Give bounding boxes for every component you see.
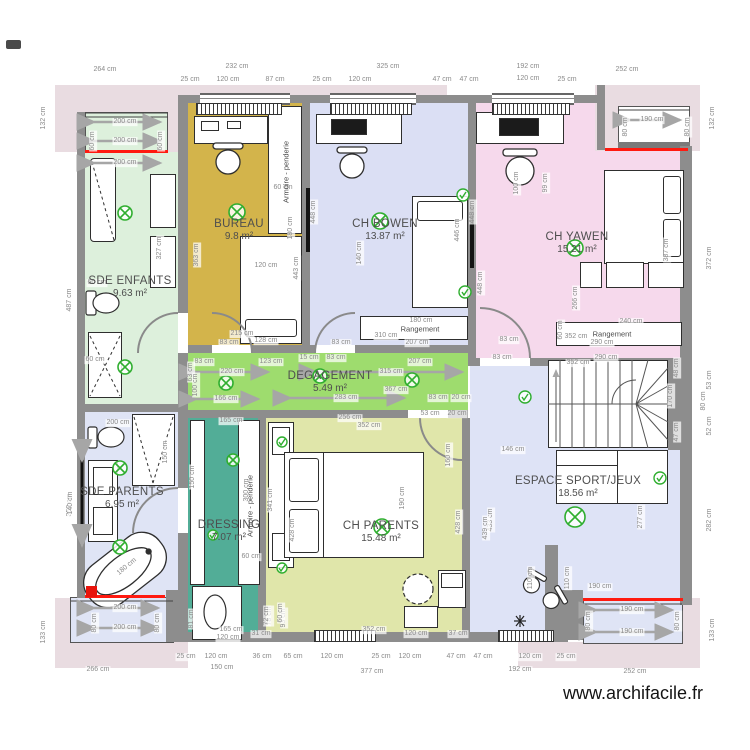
dimension-label: 232 cm [225, 63, 250, 71]
bay-window-top-left [85, 112, 168, 152]
pillow [663, 176, 681, 214]
bathtub-child[interactable] [90, 158, 116, 242]
radiator[interactable] [498, 630, 554, 642]
red-marker [86, 586, 97, 597]
dimension-label: 133 cm [40, 620, 48, 645]
window-marker-red [85, 150, 168, 153]
dimension-label: 252 cm [615, 66, 640, 74]
dresser[interactable] [438, 570, 466, 608]
wardrobe[interactable] [268, 106, 302, 234]
dimension-label: 25 cm [311, 76, 332, 84]
corner-ui-artifact [6, 40, 21, 49]
dimension-label: 192 cm [516, 63, 541, 71]
dimension-label: 25 cm [370, 653, 391, 661]
room-degagement[interactable] [188, 353, 468, 410]
dimension-label: 325 cm [376, 63, 401, 71]
sofa-divider [617, 451, 618, 503]
dimension-label: 133 cm [709, 618, 717, 643]
wall-segment [77, 112, 85, 598]
wall-segment [556, 590, 583, 640]
door-opening [178, 488, 188, 533]
bed-single[interactable] [412, 196, 468, 308]
door-opening [315, 345, 355, 353]
desk[interactable] [476, 112, 564, 144]
bay-window-top-right [618, 106, 690, 144]
desk-item [201, 121, 219, 131]
dimension-label: 47 cm [458, 76, 479, 84]
staircase[interactable] [548, 360, 668, 448]
floor-plan: 264 cm232 cm325 cm192 cm252 cm25 cm120 c… [0, 0, 750, 750]
sofa[interactable] [556, 450, 668, 504]
dimension-label: 80 cm [700, 390, 708, 411]
window-marker-red [85, 595, 165, 598]
dimension-label: 352 cm [66, 493, 74, 518]
dimension-label: 36 cm [251, 653, 272, 661]
bed-divider [323, 453, 324, 557]
basin [93, 467, 113, 495]
wardrobe[interactable] [238, 420, 260, 585]
pillow [417, 201, 463, 221]
shower[interactable] [132, 414, 175, 486]
dimension-label: 65 cm [282, 653, 303, 661]
computer-monitor [499, 118, 539, 136]
washbasin-cabinet[interactable] [150, 174, 176, 228]
dimension-label: 120 cm [398, 653, 423, 661]
washbasin-cabinet[interactable] [150, 236, 176, 288]
door-opening [178, 313, 188, 353]
dimension-label: 53 cm [706, 369, 714, 390]
desk[interactable] [316, 114, 402, 144]
drawer [441, 573, 463, 588]
dimension-label: 150 cm [210, 664, 235, 672]
dimension-label: 377 cm [360, 668, 385, 676]
radiator[interactable] [492, 103, 570, 115]
shelf [272, 427, 290, 455]
double-washbasin[interactable] [88, 460, 118, 542]
window-marker-red [605, 148, 688, 151]
computer-monitor [331, 119, 367, 135]
terrace-bottom-right [518, 642, 700, 668]
washbasin-counter[interactable] [192, 586, 242, 640]
watermark: www.archifacile.fr [563, 683, 703, 704]
pillow [245, 319, 297, 337]
sofa-line [557, 465, 617, 466]
bench[interactable] [404, 606, 438, 628]
shower[interactable] [88, 332, 122, 398]
dimension-label: 120 cm [216, 76, 241, 84]
bed-single[interactable] [604, 170, 684, 264]
wall-segment [77, 404, 178, 412]
pillow [289, 509, 319, 553]
bed-single[interactable] [240, 236, 302, 344]
wall-radiator[interactable] [470, 206, 474, 268]
bed-double[interactable] [284, 452, 424, 558]
dimension-label: 487 cm [66, 288, 74, 313]
pillow [663, 219, 681, 257]
basin [93, 507, 113, 535]
radiator[interactable] [196, 103, 282, 115]
dimension-label: 120 cm [204, 653, 229, 661]
dimension-label: 120 cm [516, 75, 541, 83]
dimension-label: 47 cm [431, 76, 452, 84]
wall-segment [178, 95, 188, 640]
window-marker-red [583, 598, 683, 601]
dimension-label: 252 cm [623, 668, 648, 676]
dresser[interactable] [360, 316, 468, 340]
wall-segment [668, 358, 680, 450]
radiator[interactable] [330, 103, 412, 115]
drawer-unit[interactable] [648, 262, 684, 288]
dimension-label: 47 cm [472, 653, 493, 661]
dimension-label: 132 cm [40, 106, 48, 131]
wall-radiator[interactable] [306, 188, 310, 252]
dimension-label: 47 cm [445, 653, 466, 661]
bay-window-bottom-right [583, 600, 683, 644]
dimension-label: 372 cm [706, 246, 714, 271]
dimension-label: 52 cm [706, 415, 714, 436]
desk-item [227, 121, 241, 129]
door-opening [480, 358, 530, 366]
wall-segment [597, 85, 605, 150]
dimension-label: 25 cm [556, 76, 577, 84]
dimension-label: 120 cm [320, 653, 345, 661]
storage-unit[interactable] [556, 322, 682, 346]
door-opening [212, 345, 252, 353]
radiator[interactable] [314, 630, 376, 642]
dimension-label: 132 cm [709, 106, 717, 131]
dimension-label: 120 cm [348, 76, 373, 84]
desk[interactable] [194, 116, 268, 144]
door-opening [408, 410, 448, 418]
nightstand[interactable] [580, 262, 602, 288]
dimension-label: 264 cm [93, 66, 118, 74]
pillow [289, 458, 319, 502]
wardrobe[interactable] [190, 420, 205, 585]
bay-window-bottom-left [70, 597, 174, 643]
dimension-label: 282 cm [706, 508, 714, 533]
dimension-label: 25 cm [179, 76, 200, 84]
wall-segment [166, 590, 188, 642]
dimension-label: 87 cm [264, 76, 285, 84]
dimension-label: 140 cm [67, 491, 75, 516]
drawer-unit[interactable] [606, 262, 644, 288]
